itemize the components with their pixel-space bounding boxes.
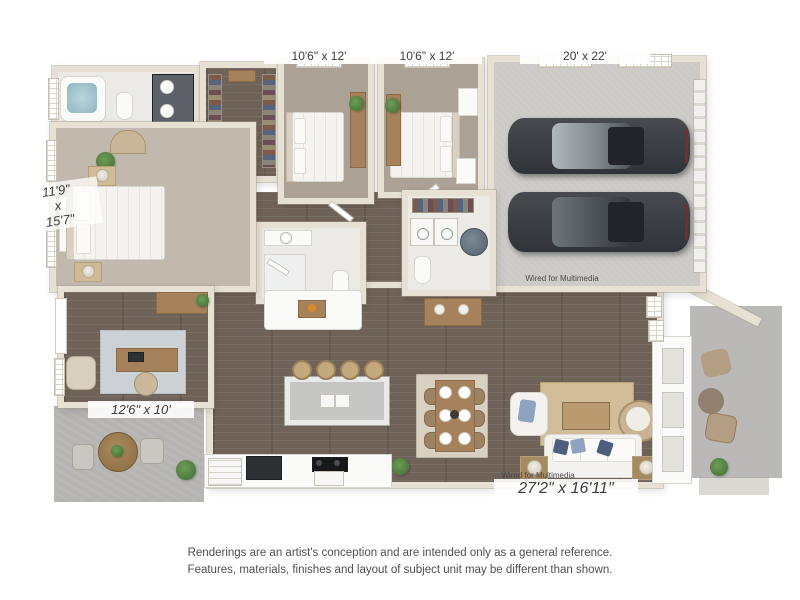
laundry-closet-clothes xyxy=(412,198,474,213)
desk-chair xyxy=(134,372,158,396)
pantry-shelves xyxy=(208,458,242,486)
master-window-1 xyxy=(46,140,57,182)
candle xyxy=(308,304,316,312)
car-1 xyxy=(508,118,690,174)
armchair-pillow xyxy=(518,399,537,423)
office-dimension-label: 12'6" x 10' xyxy=(88,401,194,418)
bar-stool-2 xyxy=(316,360,336,380)
garage xyxy=(488,56,706,292)
double-vanity xyxy=(152,74,194,126)
patio-plant xyxy=(176,460,196,480)
closet-shelf xyxy=(228,70,256,82)
bedroom-3-pillow-2 xyxy=(440,146,452,172)
plate-2 xyxy=(458,386,471,399)
office-plant xyxy=(196,294,209,307)
car-2-roof xyxy=(608,202,644,243)
car-1-roof xyxy=(608,127,644,165)
bedroom-2-pillow xyxy=(294,118,306,144)
master-bath-window xyxy=(48,78,59,120)
plate-5 xyxy=(439,432,452,445)
porch-step xyxy=(700,478,768,494)
kitchen-plant xyxy=(392,458,409,475)
patio-chair-1 xyxy=(72,444,94,470)
bedroom-3-dresser-2 xyxy=(456,158,476,184)
garage-door xyxy=(694,80,705,272)
refrigerator xyxy=(246,456,282,480)
island-sink xyxy=(320,394,335,408)
farm-sink xyxy=(314,471,344,486)
car-1-taillight xyxy=(685,129,688,163)
bar-stool-1 xyxy=(292,360,312,380)
wired-for-multimedia-living: Wired for Multimedia xyxy=(478,471,598,480)
toilet-laundry xyxy=(414,256,431,284)
bar-stool-3 xyxy=(340,360,360,380)
coffee-table xyxy=(562,402,610,430)
living-window-2 xyxy=(648,320,664,342)
master-lamp-2 xyxy=(82,265,95,278)
island-sink-2 xyxy=(335,394,350,408)
garage-dimension-label: 20' x 22' xyxy=(520,48,650,64)
bedroom-3-dimension-label: 10'6" x 12' xyxy=(372,48,482,64)
master-lamp-1 xyxy=(96,169,109,182)
disclaimer-text: Renderings are an artist's conception an… xyxy=(0,545,800,579)
sink-1 xyxy=(160,80,174,94)
bathtub-water xyxy=(67,83,97,113)
bedroom-2-pillow-2 xyxy=(294,148,306,174)
water-heater xyxy=(460,228,488,256)
bedroom-2-dimension-label: 10'6" x 12' xyxy=(264,48,374,64)
bedroom-3-dresser xyxy=(458,88,478,116)
hanging-clothes-right xyxy=(262,74,276,168)
wicker-chair-2 xyxy=(704,412,738,445)
office-armchair xyxy=(66,356,96,390)
bedroom-2-plant xyxy=(349,96,364,111)
car-2 xyxy=(508,192,690,252)
patio-right-rug xyxy=(698,388,724,414)
washer xyxy=(410,218,434,246)
master-window-2 xyxy=(46,226,57,268)
sofa-pillow-1 xyxy=(553,439,570,456)
toilet-master xyxy=(116,92,133,120)
burner-2 xyxy=(334,460,340,466)
bedroom-3-plant xyxy=(385,98,400,113)
sofa-pillow-2 xyxy=(570,438,586,454)
burner-1 xyxy=(316,460,322,466)
bedroom-3-pillow xyxy=(440,116,452,142)
plate-4 xyxy=(458,409,471,422)
laptop xyxy=(128,352,144,362)
disclaimer-line-2: Features, materials, finishes and layout… xyxy=(0,562,800,579)
arch-decor xyxy=(110,130,146,154)
patio-right-plant xyxy=(710,458,728,476)
wired-for-multimedia-garage: Wired for Multimedia xyxy=(500,274,624,283)
living-dimension-label: 27'2" x 16'11" xyxy=(494,479,638,499)
disclaimer-line-1: Renderings are an artist's conception an… xyxy=(0,545,800,562)
centerpiece xyxy=(450,410,459,419)
plate-1 xyxy=(439,386,452,399)
living-window-1 xyxy=(646,296,662,318)
office-patio-door xyxy=(55,298,67,354)
bar-stool-4 xyxy=(364,360,384,380)
car-2-taillight xyxy=(685,204,688,240)
accent-chair-cushion xyxy=(626,407,650,431)
patio-chair-2 xyxy=(140,438,164,464)
floor-plan-image: 10'6" x 12' 10'6" x 12' 20' x 22' 11'9" … xyxy=(0,0,800,600)
console-vase-1 xyxy=(434,304,445,315)
desk xyxy=(116,348,178,372)
dryer xyxy=(434,218,458,246)
media-shelf-3 xyxy=(662,436,684,472)
entry-console xyxy=(424,298,482,326)
hall-bath-sink xyxy=(280,232,292,244)
media-shelf-1 xyxy=(662,348,684,384)
plate-6 xyxy=(458,432,471,445)
master-pillow-2 xyxy=(76,224,91,254)
sink-2 xyxy=(160,104,174,118)
patio-table-plant xyxy=(111,445,123,457)
media-shelf-2 xyxy=(662,392,684,428)
console-vase-2 xyxy=(458,304,469,315)
office-window xyxy=(54,358,65,396)
